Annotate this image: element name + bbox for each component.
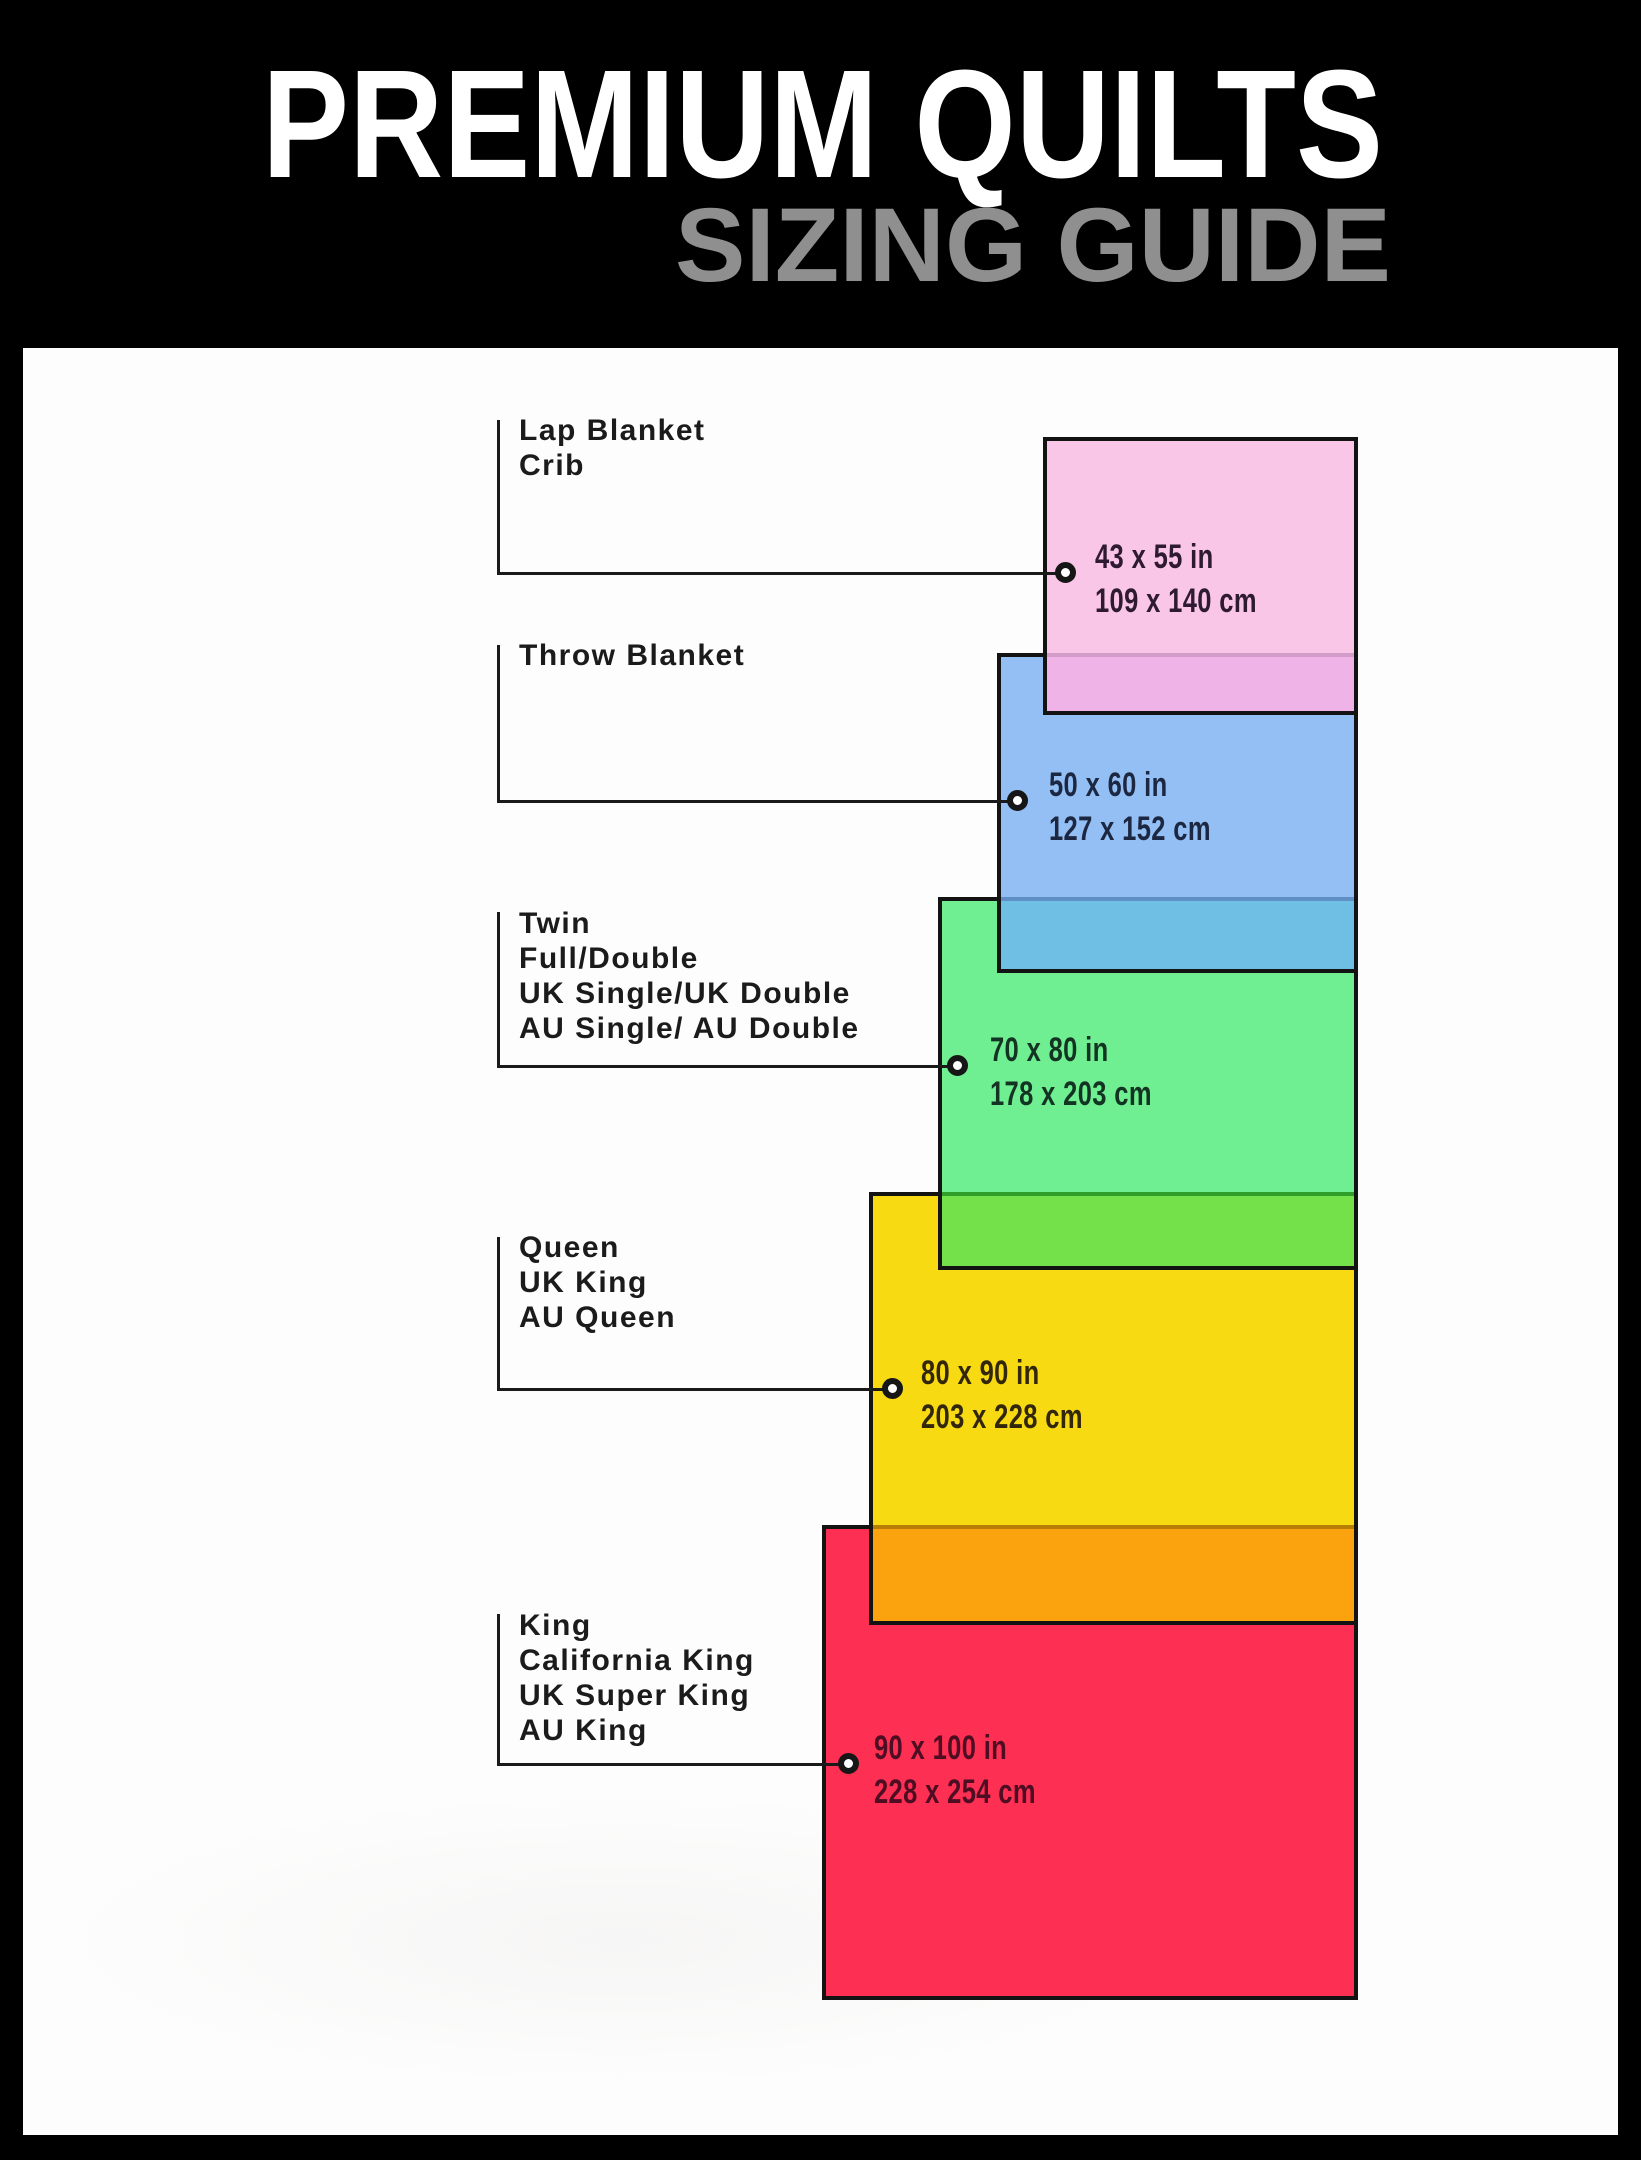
size-label-line: Throw Blanket xyxy=(519,638,745,673)
connector-hline xyxy=(498,1388,888,1391)
connector-dot xyxy=(1007,790,1028,811)
size-label-line: AU Queen xyxy=(519,1300,676,1335)
connector-vline xyxy=(497,1614,500,1766)
dimensions-in: 70 x 80 in xyxy=(990,1028,1152,1072)
size-label-twin: Twin Full/Double UK Single/UK Double AU … xyxy=(519,906,860,1046)
dimensions-lap-crib: 43 x 55 in 109 x 140 cm xyxy=(1095,535,1257,623)
overlap-region xyxy=(1001,897,1354,969)
dimensions-king: 90 x 100 in 228 x 254 cm xyxy=(874,1726,1036,1814)
page-title: PREMIUM QUILTS xyxy=(262,38,1383,210)
connector-dot xyxy=(1055,562,1076,583)
dimensions-cm: 109 x 140 cm xyxy=(1095,579,1257,623)
connector-vline xyxy=(497,420,500,575)
dimensions-cm: 228 x 254 cm xyxy=(874,1770,1036,1814)
size-label-line: Crib xyxy=(519,448,706,483)
connector-hline xyxy=(498,1763,844,1766)
connector-dot xyxy=(947,1055,968,1076)
size-label-line: Full/Double xyxy=(519,941,860,976)
connector-dot xyxy=(838,1753,859,1774)
size-label-throw: Throw Blanket xyxy=(519,638,745,673)
dimensions-cm: 127 x 152 cm xyxy=(1049,807,1211,851)
dimensions-twin: 70 x 80 in 178 x 203 cm xyxy=(990,1028,1152,1116)
size-label-queen: Queen UK King AU Queen xyxy=(519,1230,676,1335)
size-label-line: UK Super King xyxy=(519,1678,755,1713)
size-label-line: AU King xyxy=(519,1713,755,1748)
dimensions-in: 50 x 60 in xyxy=(1049,763,1211,807)
size-label-line: Twin xyxy=(519,906,860,941)
header-band: PREMIUM QUILTS SIZING GUIDE xyxy=(0,0,1641,348)
connector-hline xyxy=(498,572,1060,575)
size-label-line: AU Single/ AU Double xyxy=(519,1011,860,1046)
size-label-king: King California King UK Super King AU Ki… xyxy=(519,1608,755,1748)
dimensions-in: 43 x 55 in xyxy=(1095,535,1257,579)
connector-vline xyxy=(497,645,500,803)
dimensions-cm: 178 x 203 cm xyxy=(990,1072,1152,1116)
overlap-region xyxy=(1047,653,1354,711)
size-label-line: UK King xyxy=(519,1265,676,1300)
dimensions-cm: 203 x 228 cm xyxy=(921,1395,1083,1439)
overlap-region xyxy=(942,1192,1354,1266)
size-label-lap-crib: Lap Blanket Crib xyxy=(519,413,706,483)
connector-vline xyxy=(497,1237,500,1391)
poster-page: PREMIUM QUILTS SIZING GUIDE 43 x 55 in 1… xyxy=(0,0,1641,2160)
page-subtitle: SIZING GUIDE xyxy=(675,187,1391,304)
dimensions-in: 80 x 90 in xyxy=(921,1351,1083,1395)
connector-vline xyxy=(497,912,500,1068)
size-label-line: UK Single/UK Double xyxy=(519,976,860,1011)
dimensions-queen: 80 x 90 in 203 x 228 cm xyxy=(921,1351,1083,1439)
size-label-line: King xyxy=(519,1608,755,1643)
dimensions-in: 90 x 100 in xyxy=(874,1726,1036,1770)
connector-dot xyxy=(882,1378,903,1399)
size-label-line: California King xyxy=(519,1643,755,1678)
dimensions-throw: 50 x 60 in 127 x 152 cm xyxy=(1049,763,1211,851)
size-label-line: Lap Blanket xyxy=(519,413,706,448)
connector-hline xyxy=(498,800,1012,803)
connector-hline xyxy=(498,1065,953,1068)
size-label-line: Queen xyxy=(519,1230,676,1265)
overlap-region xyxy=(873,1525,1354,1621)
